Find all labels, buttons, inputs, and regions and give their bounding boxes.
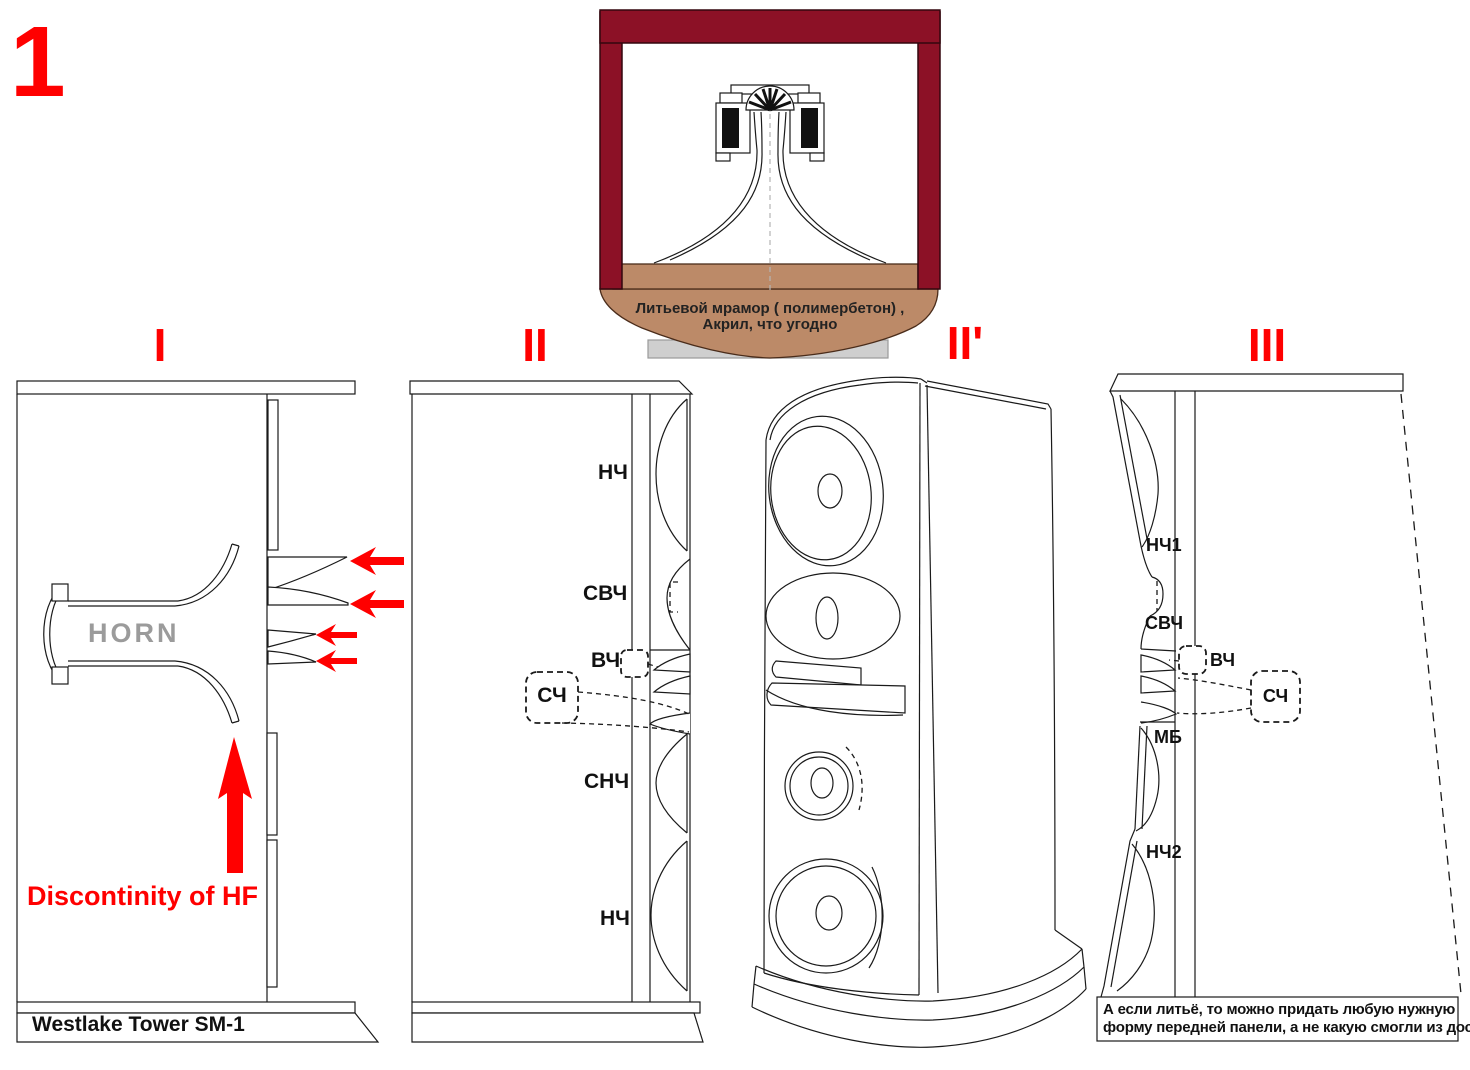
horn-flare-left-inner [670, 152, 762, 260]
red-arrow-1 [350, 547, 404, 575]
d2p-woofer-dustcap [818, 474, 842, 508]
d2-base-band [412, 1002, 700, 1013]
d2-plinth [412, 1013, 703, 1042]
d3-vch-callout-box [1179, 646, 1206, 674]
frame-right-column [918, 12, 940, 289]
frame-top-beam [600, 10, 940, 43]
d1-front-board-bottom [267, 840, 277, 987]
diagram-2-side-section [410, 381, 703, 1042]
d3-top-panel [1110, 374, 1403, 391]
d1-front-board-mid [267, 733, 277, 835]
horn-flare-left-outer [654, 150, 757, 263]
d2-vch-callout-box [621, 650, 648, 677]
section-label-III: III [1222, 324, 1312, 366]
d3-label-svch: СВЧ [1145, 613, 1183, 634]
d1-base-band [17, 1002, 355, 1013]
horn-flare-right-inner [778, 152, 870, 260]
d3-back-edge-dashed [1401, 394, 1461, 994]
insert-material-note-line2: Акрил, что угодно [600, 316, 940, 333]
compression-driver [654, 85, 886, 291]
d3-note-line2: форму передней панели, а не какую смогли… [1103, 1019, 1470, 1036]
d2-label-sch: СЧ [526, 684, 578, 708]
diagram-1-side-section [17, 381, 404, 1042]
d2-label-nch-bottom: НЧ [600, 907, 630, 931]
d3-label-nch2: НЧ2 [1146, 842, 1182, 863]
section-label-I: I [130, 324, 190, 366]
d2-label-snch: СНЧ [584, 770, 629, 794]
speaker-design-figure: 1 I II II' III Литьевой мрамор ( полимер… [0, 0, 1470, 1070]
d1-front-board-top [268, 400, 278, 550]
d3-label-sch: СЧ [1251, 686, 1300, 707]
red-arrow-4 [316, 650, 357, 672]
red-arrow-3 [316, 624, 357, 646]
horn-flare-right-outer [783, 150, 886, 263]
d1-top-panel [17, 381, 355, 394]
red-arrow-2 [350, 590, 404, 618]
model-name-label: Westlake Tower SM-1 [32, 1013, 245, 1037]
d3-label-nch1: НЧ1 [1146, 535, 1182, 556]
d2-label-vch: ВЧ [591, 649, 620, 673]
section-label-II: II [495, 324, 575, 366]
d3-label-mb: МБ [1154, 727, 1182, 748]
figure-number: 1 [10, 16, 66, 108]
voice-coil-left [722, 108, 739, 148]
frame-left-column [600, 12, 622, 289]
horn-label: HORN [88, 618, 180, 649]
red-up-arrow [218, 737, 252, 873]
insert-material-note-line1: Литьевой мрамор ( полимербетон) , [600, 300, 940, 317]
hf-discontinuity-annotation: Discontinity of HF [27, 881, 258, 912]
d2-label-nch-top: НЧ [598, 461, 628, 485]
diagram-3-cast-panel-section [1097, 374, 1461, 1041]
d2-label-svch: СВЧ [583, 582, 627, 606]
insert-baffle-board [613, 264, 918, 289]
d3-note-line1: А если литьё, то можно придать любую нуж… [1103, 1001, 1455, 1018]
d2p-right-edge [1051, 409, 1055, 930]
voice-coil-right [801, 108, 818, 148]
d2p-front-left-edge [764, 440, 766, 973]
diagram-2p-perspective-view [752, 377, 1086, 1047]
d2-top-panel [410, 381, 692, 394]
d3-label-vch: ВЧ [1210, 650, 1235, 671]
